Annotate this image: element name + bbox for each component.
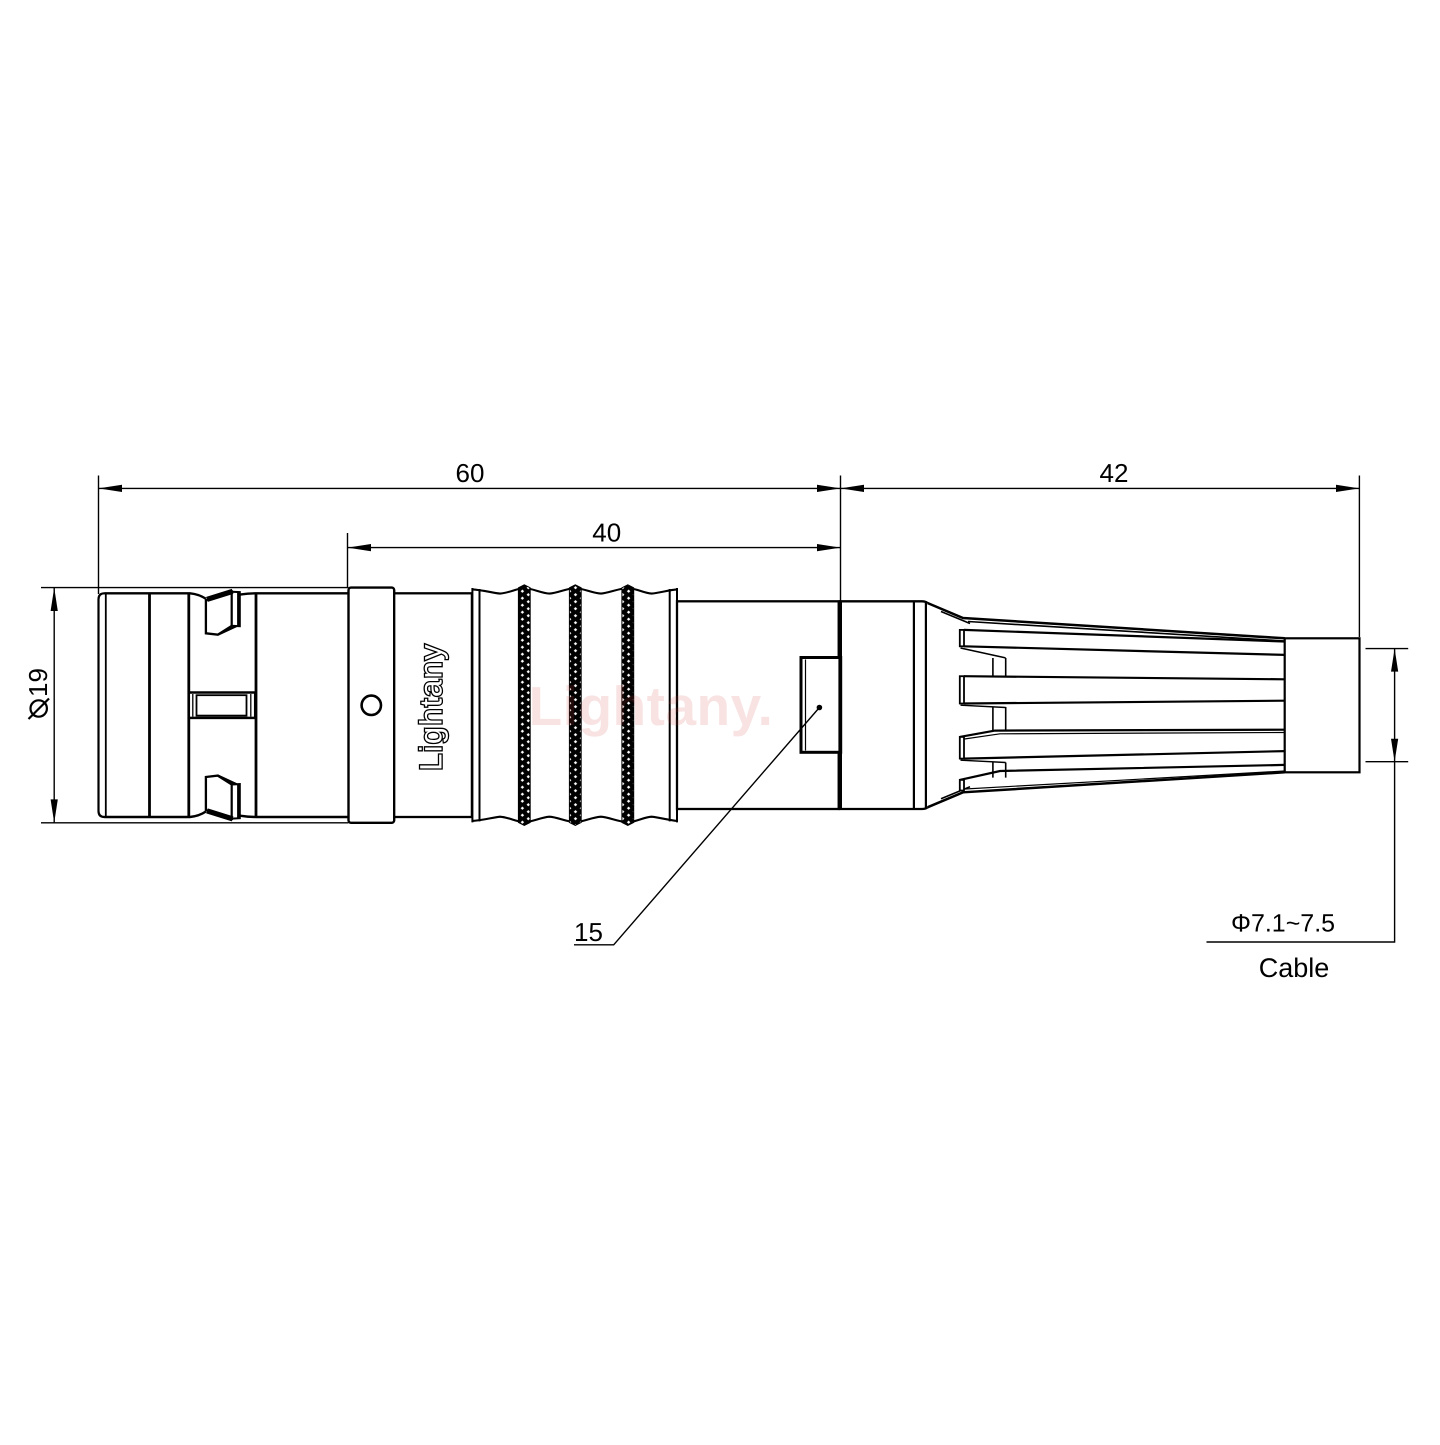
svg-text:Cable: Cable [1259, 953, 1330, 983]
svg-text:Lightany.: Lightany. [529, 675, 774, 737]
svg-text:40: 40 [592, 518, 621, 548]
svg-text:15: 15 [574, 917, 603, 947]
svg-text:19: 19 [23, 668, 53, 697]
svg-text:Lightany: Lightany [414, 643, 449, 771]
svg-text:60: 60 [456, 458, 485, 488]
svg-text:42: 42 [1100, 458, 1129, 488]
svg-text:Φ7.1~7.5: Φ7.1~7.5 [1231, 910, 1335, 938]
